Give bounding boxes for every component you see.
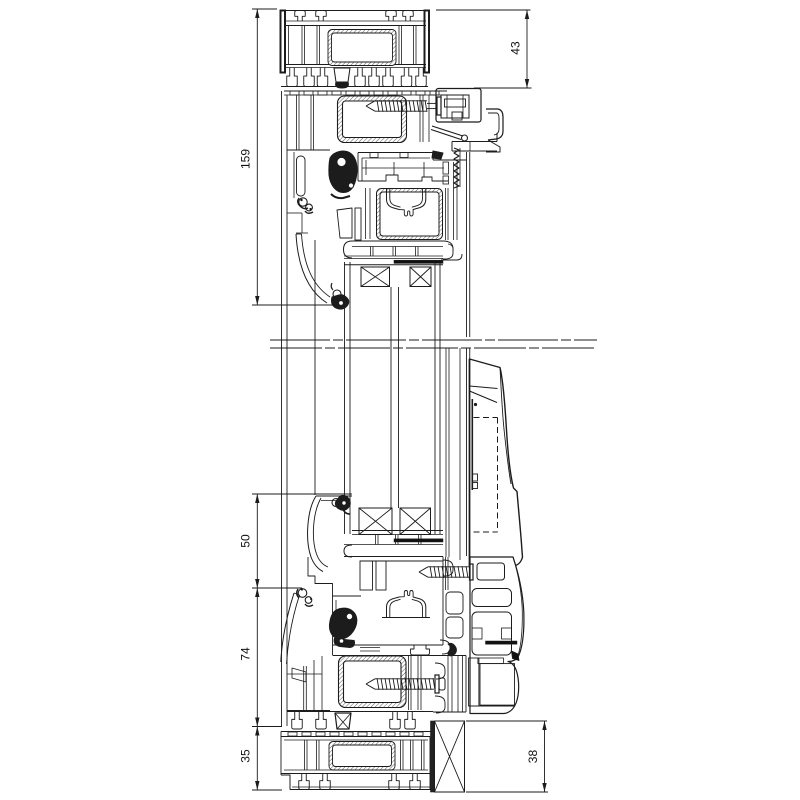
svg-text:38: 38 (526, 750, 540, 764)
svg-text:50: 50 (239, 534, 253, 548)
svg-text:159: 159 (239, 149, 253, 169)
svg-text:35: 35 (239, 749, 253, 763)
svg-text:74: 74 (239, 647, 253, 661)
svg-text:43: 43 (509, 41, 523, 55)
